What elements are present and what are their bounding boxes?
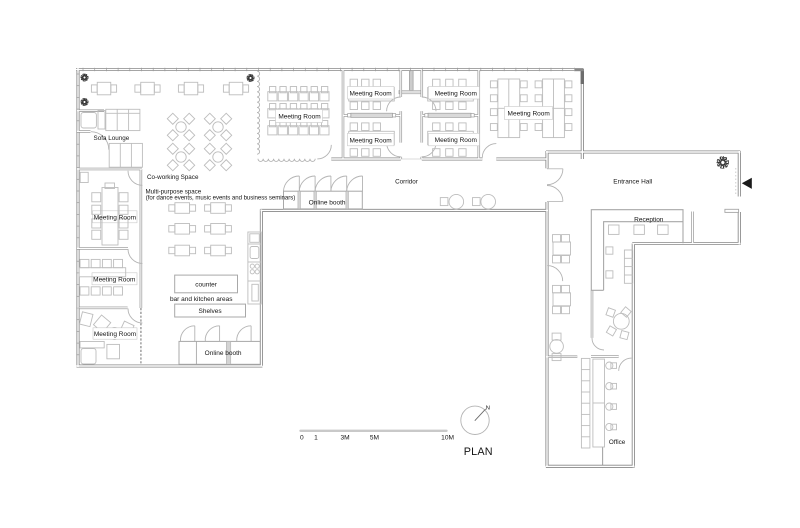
svg-text:Meeting Room: Meeting Room: [349, 137, 391, 144]
svg-text:Co-working Space: Co-working Space: [147, 174, 199, 181]
svg-text:3M: 3M: [341, 435, 350, 442]
svg-text:Reception: Reception: [634, 217, 664, 224]
svg-text:Office: Office: [609, 439, 626, 446]
svg-text:Meeting Room: Meeting Room: [94, 331, 136, 338]
svg-text:Meeting Room: Meeting Room: [93, 277, 135, 284]
svg-text:counter: counter: [195, 281, 218, 288]
svg-text:Shelves: Shelves: [199, 308, 223, 315]
svg-text:bar and kitchen areas: bar and kitchen areas: [170, 296, 233, 303]
svg-text:Corridor: Corridor: [395, 178, 418, 185]
svg-text:Sofa Lounge: Sofa Lounge: [94, 135, 130, 142]
svg-text:Meeting Room: Meeting Room: [278, 113, 320, 120]
svg-text:Online booth: Online booth: [205, 350, 242, 357]
svg-text:1: 1: [314, 435, 318, 442]
svg-text:(for dance events, music event: (for dance events, music events and busi…: [146, 195, 295, 202]
svg-text:Meeting Room: Meeting Room: [349, 90, 391, 97]
svg-text:Entrance Hall: Entrance Hall: [613, 179, 653, 186]
svg-text:10M: 10M: [441, 435, 454, 442]
svg-text:Online booth: Online booth: [309, 199, 346, 206]
svg-text:N: N: [486, 405, 490, 411]
svg-text:PLAN: PLAN: [464, 446, 493, 458]
svg-text:Meeting Room: Meeting Room: [94, 215, 136, 222]
svg-text:Meeting Room: Meeting Room: [508, 111, 550, 118]
svg-text:5M: 5M: [370, 435, 379, 442]
svg-text:Meeting Room: Meeting Room: [435, 90, 477, 97]
svg-text:Meeting Room: Meeting Room: [435, 137, 477, 144]
svg-text:0: 0: [300, 435, 304, 442]
